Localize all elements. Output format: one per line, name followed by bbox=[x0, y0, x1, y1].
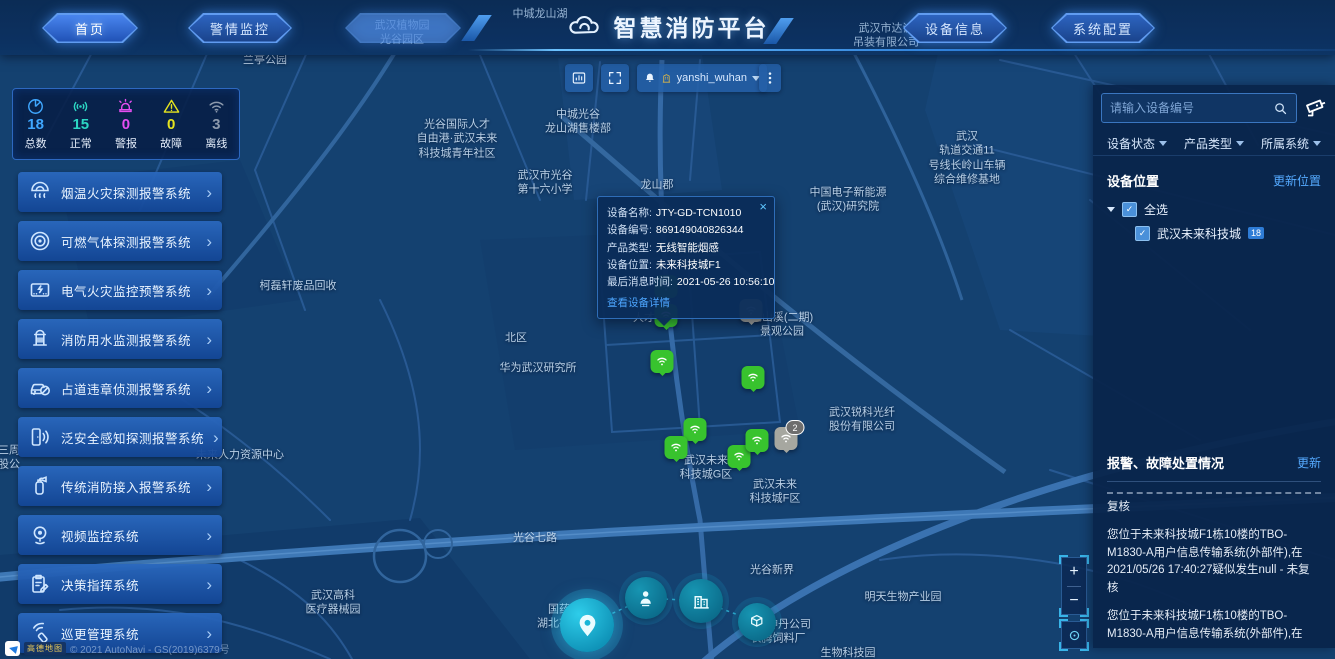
device-info-popup: × 设备名称:JTY-GD-TCN1010设备编号:86914904082634… bbox=[597, 196, 775, 319]
app-header: 中城龙山湖武汉植物园 光谷园区武汉市达诚 吊装有限公司 首页 警情监控 设备信息… bbox=[0, 0, 1335, 55]
header-glow-line bbox=[468, 49, 1335, 51]
hub-person-marker[interactable] bbox=[625, 577, 667, 619]
popup-field: 产品类型:无线智能烟感 bbox=[607, 240, 765, 257]
stat-label: 警报 bbox=[115, 135, 137, 151]
chart-icon bbox=[571, 70, 587, 86]
popup-field-label: 产品类型: bbox=[607, 240, 652, 257]
popup-field: 设备位置:未来科技城F1 bbox=[607, 257, 765, 274]
org-name: yanshi_wuhan bbox=[677, 72, 747, 84]
device-offline-marker[interactable]: 2 bbox=[775, 427, 798, 450]
filter-label: 产品类型 bbox=[1184, 135, 1232, 152]
device-online-marker[interactable] bbox=[651, 350, 674, 373]
chevron-right-icon: › bbox=[206, 184, 212, 201]
nav-button-device-info[interactable]: 设备信息 bbox=[903, 13, 1007, 43]
popup-field-label: 设备位置: bbox=[607, 257, 652, 274]
stat-离线: 3离线 bbox=[205, 97, 227, 151]
device-panel: 设备状态产品类型所属系统 设备位置 更新位置 全选 武汉未来科技城 18 报警、… bbox=[1093, 85, 1335, 648]
map-canvas[interactable]: 兰亭公园中城光谷 龙山湖售楼部光谷国际人才 自由港·武汉未来 科技城青年社区武汉… bbox=[0, 0, 1335, 659]
alert-text: 您位于未来科技城F1栋10楼的TBO-M1830-A用户信息传输系统(外部件),… bbox=[1107, 529, 1310, 594]
divider bbox=[1107, 481, 1321, 482]
popup-field-value: JTY-GD-TCN1010 bbox=[656, 205, 741, 222]
alert-item-0[interactable]: 复核 bbox=[1107, 492, 1321, 517]
device-stats-panel: 18总数15正常0警报0故障3离线 bbox=[12, 88, 240, 160]
stat-value: 0 bbox=[122, 117, 130, 134]
hub-box-marker[interactable] bbox=[738, 603, 776, 641]
chevron-right-icon: › bbox=[213, 429, 219, 446]
gas-detector-icon bbox=[28, 229, 52, 253]
popup-field: 设备编号:869149040826344 bbox=[607, 222, 765, 239]
statistics-button[interactable] bbox=[565, 64, 593, 92]
chevron-right-icon: › bbox=[206, 380, 212, 397]
fullscreen-button[interactable] bbox=[601, 64, 629, 92]
alerts-section: 报警、故障处置情况 更新 复核您位于未来科技城F1栋10楼的TBO-M1830-… bbox=[1107, 453, 1321, 644]
sidebar-item-label: 决策指挥系统 bbox=[61, 575, 197, 594]
checkbox-location[interactable] bbox=[1135, 226, 1150, 241]
hub-building-marker[interactable] bbox=[679, 579, 723, 623]
popup-field-label: 最后消息时间: bbox=[607, 274, 673, 291]
popup-field-value: 未来科技城F1 bbox=[656, 257, 721, 274]
stat-正常: 15正常 bbox=[70, 97, 92, 151]
chevron-right-icon: › bbox=[206, 233, 212, 250]
sidebar-item-0[interactable]: 烟温火灾探测报警系统› bbox=[18, 172, 222, 212]
stat-故障: 0故障 bbox=[160, 97, 182, 151]
popup-field-label: 设备名称: bbox=[607, 205, 652, 222]
chevron-right-icon: › bbox=[206, 576, 212, 593]
org-selector[interactable]: yanshi_wuhan bbox=[637, 64, 767, 92]
sidebar-item-2[interactable]: 电气火灾监控预警系统› bbox=[18, 270, 222, 310]
attribution-text: © 2021 AutoNavi - GS(2019)6379号 bbox=[70, 641, 230, 656]
count-badge: 18 bbox=[1248, 227, 1264, 240]
sidebar-item-6[interactable]: 传统消防接入报警系统› bbox=[18, 466, 222, 506]
chevron-right-icon: › bbox=[206, 625, 212, 642]
stat-value: 0 bbox=[167, 117, 175, 134]
device-online-marker[interactable] bbox=[746, 429, 769, 452]
cctv-camera-icon bbox=[1304, 96, 1328, 120]
alert-text: 复核 bbox=[1107, 501, 1130, 513]
alarm-icon bbox=[116, 97, 135, 116]
wifi-icon bbox=[207, 97, 226, 116]
view-device-details-link[interactable]: 查看设备详情 bbox=[607, 295, 670, 310]
sidebar-item-label: 占道违章侦测报警系统 bbox=[61, 379, 197, 398]
stat-label: 离线 bbox=[205, 135, 227, 151]
hydrant-icon bbox=[28, 327, 52, 351]
alert-text: 您位于未来科技城F1栋10楼的TBO-M1830-A用户信息传输系统(外部件),… bbox=[1107, 610, 1312, 644]
filter-dropdown-1[interactable]: 产品类型 bbox=[1184, 135, 1244, 152]
tree-label: 全选 bbox=[1144, 201, 1168, 218]
stat-value: 3 bbox=[212, 117, 220, 134]
box-icon bbox=[748, 613, 765, 630]
caret-down-icon bbox=[1107, 207, 1115, 212]
systems-sidebar: 烟温火灾探测报警系统›可燃气体探测报警系统›电气火灾监控预警系统›消防用水监测报… bbox=[18, 172, 222, 659]
sidebar-item-label: 巡更管理系统 bbox=[61, 624, 197, 643]
nav-label: 设备信息 bbox=[925, 19, 985, 38]
search-icon[interactable] bbox=[1273, 101, 1288, 116]
sidebar-item-label: 泛安全感知探测报警系统 bbox=[61, 428, 204, 447]
close-icon[interactable]: × bbox=[759, 200, 767, 213]
sidebar-item-label: 可燃气体探测报警系统 bbox=[61, 232, 197, 251]
bell-icon bbox=[644, 71, 656, 85]
pie-chart-icon bbox=[26, 97, 45, 116]
search-input[interactable] bbox=[1102, 101, 1273, 115]
video-icon bbox=[28, 523, 52, 547]
stat-label: 正常 bbox=[70, 135, 92, 151]
nav-button-home[interactable]: 首页 bbox=[42, 13, 138, 43]
stat-警报: 0警报 bbox=[115, 97, 137, 151]
divider bbox=[1067, 586, 1081, 587]
wifi-marker-icon bbox=[669, 440, 684, 455]
popup-field-value: 无线智能烟感 bbox=[656, 240, 719, 257]
amap-badge: 高德地图 bbox=[24, 642, 66, 655]
ellipsis-icon bbox=[762, 70, 778, 86]
sidebar-item-5[interactable]: 泛安全感知探测报警系统› bbox=[18, 417, 222, 457]
stat-总数: 18总数 bbox=[25, 97, 47, 151]
popup-field-value: 2021-05-26 10:56:10 bbox=[677, 274, 775, 291]
checkbox-select-all[interactable] bbox=[1122, 202, 1137, 217]
sidebar-item-label: 烟温火灾探测报警系统 bbox=[61, 183, 197, 202]
wifi-marker-icon bbox=[732, 449, 747, 464]
clipboard-icon bbox=[28, 572, 52, 596]
filter-dropdown-2[interactable]: 所属系统 bbox=[1261, 135, 1321, 152]
chevron-right-icon: › bbox=[206, 527, 212, 544]
sidebar-item-3[interactable]: 消防用水监测报警系统› bbox=[18, 319, 222, 359]
caret-down-icon bbox=[1313, 141, 1321, 146]
sidebar-item-7[interactable]: 视频监控系统› bbox=[18, 515, 222, 555]
wifi-marker-icon bbox=[655, 354, 670, 369]
car-icon bbox=[28, 376, 52, 400]
app-title: 智慧消防平台 bbox=[566, 9, 770, 43]
sidebar-item-label: 视频监控系统 bbox=[61, 526, 197, 545]
filter-label: 所属系统 bbox=[1261, 135, 1309, 152]
crosshair-icon[interactable] bbox=[1067, 628, 1082, 643]
header-deco-stripe bbox=[461, 15, 492, 41]
sidebar-item-label: 消防用水监测报警系统 bbox=[61, 330, 197, 349]
device-search bbox=[1101, 93, 1297, 123]
nav-label: 系统配置 bbox=[1073, 19, 1133, 38]
device-location-header: 设备位置 更新位置 bbox=[1107, 171, 1321, 190]
amap-logo-icon bbox=[5, 641, 20, 656]
fullscreen-icon bbox=[607, 70, 623, 86]
section-title: 报警、故障处置情况 bbox=[1107, 453, 1224, 472]
location-tree: 全选 武汉未来科技城 18 bbox=[1107, 197, 1325, 245]
map-locate-control bbox=[1061, 621, 1087, 649]
wifi-marker-icon bbox=[746, 370, 761, 385]
cluster-count-badge: 2 bbox=[786, 420, 805, 435]
building-icon bbox=[691, 591, 711, 611]
map-label: 中城龙山湖 bbox=[513, 7, 568, 21]
device-online-marker[interactable] bbox=[684, 418, 707, 441]
sidebar-item-label: 传统消防接入报警系统 bbox=[61, 477, 197, 496]
popup-field: 最后消息时间:2021-05-26 10:56:10 bbox=[607, 274, 765, 291]
device-online-marker[interactable] bbox=[665, 436, 688, 459]
hub-locate-marker[interactable] bbox=[560, 598, 614, 652]
chevron-right-icon: › bbox=[206, 331, 212, 348]
alert-item-2[interactable]: 您位于未来科技城F1栋10楼的TBO-M1830-A用户信息传输系统(外部件),… bbox=[1107, 608, 1321, 644]
platform-logo-icon bbox=[566, 13, 604, 39]
org-icon bbox=[661, 72, 672, 85]
sidebar-item-8[interactable]: 决策指挥系统› bbox=[18, 564, 222, 604]
stat-label: 总数 bbox=[25, 135, 47, 151]
stat-label: 故障 bbox=[160, 135, 182, 151]
extinguisher-icon bbox=[28, 474, 52, 498]
chevron-right-icon: › bbox=[206, 282, 212, 299]
nav-button-empty[interactable] bbox=[345, 13, 461, 43]
sidebar-item-4[interactable]: 占道违章侦测报警系统› bbox=[18, 368, 222, 408]
sidebar-item-label: 电气火灾监控预警系统 bbox=[61, 281, 197, 300]
filter-label: 设备状态 bbox=[1107, 135, 1155, 152]
warning-icon bbox=[162, 97, 181, 116]
caret-down-icon bbox=[1236, 141, 1244, 146]
chevron-right-icon: › bbox=[206, 478, 212, 495]
tree-label: 武汉未来科技城 bbox=[1157, 225, 1241, 242]
nav-label: 首页 bbox=[75, 19, 105, 38]
map-attribution: 高德地图 © 2021 AutoNavi - GS(2019)6379号 bbox=[5, 641, 230, 656]
camera-button[interactable] bbox=[1301, 93, 1331, 123]
refresh-alerts-link[interactable]: 更新 bbox=[1297, 454, 1321, 471]
popup-field: 设备名称:JTY-GD-TCN1010 bbox=[607, 205, 765, 222]
smoke-detector-icon bbox=[28, 180, 52, 204]
nav-label: 警情监控 bbox=[210, 19, 270, 38]
signal-icon bbox=[71, 97, 90, 116]
nav-button-alarm-monitor[interactable]: 警情监控 bbox=[188, 13, 292, 43]
electric-panel-icon bbox=[28, 278, 52, 302]
pin-icon bbox=[574, 612, 601, 639]
nav-button-system-config[interactable]: 系统配置 bbox=[1051, 13, 1155, 43]
filter-dropdown-0[interactable]: 设备状态 bbox=[1107, 135, 1167, 152]
stat-value: 18 bbox=[27, 117, 44, 134]
caret-down-icon bbox=[1159, 141, 1167, 146]
tree-node-select-all[interactable]: 全选 bbox=[1107, 197, 1325, 221]
sensor-icon bbox=[28, 425, 52, 449]
alert-item-1[interactable]: 您位于未来科技城F1栋10楼的TBO-M1830-A用户信息传输系统(外部件),… bbox=[1107, 527, 1321, 598]
popup-field-value: 869149040826344 bbox=[656, 222, 744, 239]
more-menu-button[interactable] bbox=[759, 64, 781, 92]
popup-field-label: 设备编号: bbox=[607, 222, 652, 239]
person-pin-icon bbox=[636, 588, 655, 607]
update-location-link[interactable]: 更新位置 bbox=[1273, 172, 1321, 189]
clipped-text-line bbox=[1107, 492, 1321, 494]
section-title: 设备位置 bbox=[1107, 171, 1159, 190]
map-zoom-control: + − bbox=[1061, 557, 1087, 615]
stat-value: 15 bbox=[72, 117, 89, 134]
alerts-header: 报警、故障处置情况 更新 bbox=[1107, 453, 1321, 472]
sidebar-item-1[interactable]: 可燃气体探测报警系统› bbox=[18, 221, 222, 261]
device-online-marker[interactable] bbox=[742, 366, 765, 389]
tree-node-wuhan-future-city[interactable]: 武汉未来科技城 18 bbox=[1135, 221, 1325, 245]
wifi-marker-icon bbox=[688, 422, 703, 437]
wifi-marker-icon bbox=[750, 433, 765, 448]
